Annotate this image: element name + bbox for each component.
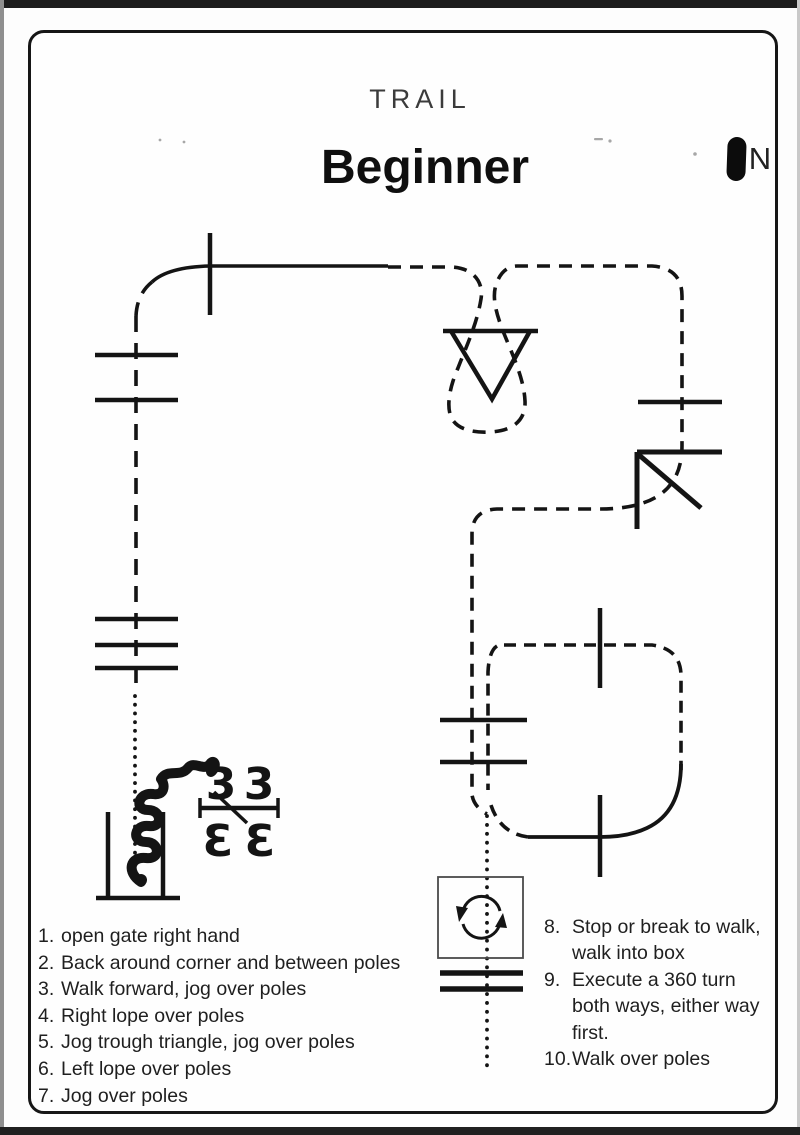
list-item: 5.Jog trough triangle, jog over poles [38,1029,458,1056]
item-number: 1. [38,923,61,950]
item-text: Stop or break to walk, walk into box [572,914,769,967]
item-number: 8. [544,914,572,967]
item-number: 9. [544,967,572,1046]
item-text: Left lope over poles [61,1056,231,1083]
trail-pattern-page: TRAIL Beginner N [0,0,800,1135]
item-text: Jog trough triangle, jog over poles [61,1029,355,1056]
list-item: 4.Right lope over poles [38,1003,458,1030]
item-text: Walk forward, jog over poles [61,976,306,1003]
loop-dashed-top-right [488,645,681,790]
item-text: Right lope over poles [61,1003,244,1030]
instructions-left: 1.open gate right hand 2.Back around cor… [38,923,458,1109]
loop-solid-bottom [528,764,681,837]
rotate-360-icon [456,896,507,938]
item-number: 7. [38,1083,61,1110]
item-number: 3. [38,976,61,1003]
path-start-curve-dashed [136,282,152,316]
item-number: 5. [38,1029,61,1056]
item-text: Jog over poles [61,1083,188,1110]
list-item: 10. Walk over poles [544,1046,769,1072]
list-item: 1.open gate right hand [38,923,458,950]
list-item: 7.Jog over poles [38,1083,458,1110]
item-number: 4. [38,1003,61,1030]
mark-bottom-right: Ɛ [245,816,276,867]
item-text: open gate right hand [61,923,240,950]
item-text: Walk over poles [572,1046,769,1072]
mark-top-right: 3 [244,759,275,810]
walk-over-poles [440,720,527,762]
mark-bottom-left: Ɛ [203,816,234,867]
hoof-direction-marks: 3 3 Ɛ Ɛ [203,759,276,867]
photo-specks [159,138,697,156]
instructions-right: 8. Stop or break to walk, walk into box … [544,914,769,1072]
list-item: 2.Back around corner and between poles [38,950,458,977]
north-arrow-icon: N [726,137,771,182]
list-item: 3.Walk forward, jog over poles [38,976,458,1003]
list-item: 6.Left lope over poles [38,1056,458,1083]
list-item: 8. Stop or break to walk, walk into box [544,914,769,967]
loop-dashed-bottom-left [489,798,528,837]
path-main-dashed [388,266,682,814]
item-number: 2. [38,950,61,977]
item-text: Execute a 360 turn both ways, either way… [572,967,769,1046]
item-text: Back around corner and between poles [61,950,400,977]
path-start-solid [152,266,388,282]
item-number: 10. [544,1046,572,1072]
north-label: N [749,141,771,176]
mark-top-left: 3 [206,759,237,810]
item-number: 6. [38,1056,61,1083]
list-item: 9. Execute a 360 turn both ways, either … [544,967,769,1046]
